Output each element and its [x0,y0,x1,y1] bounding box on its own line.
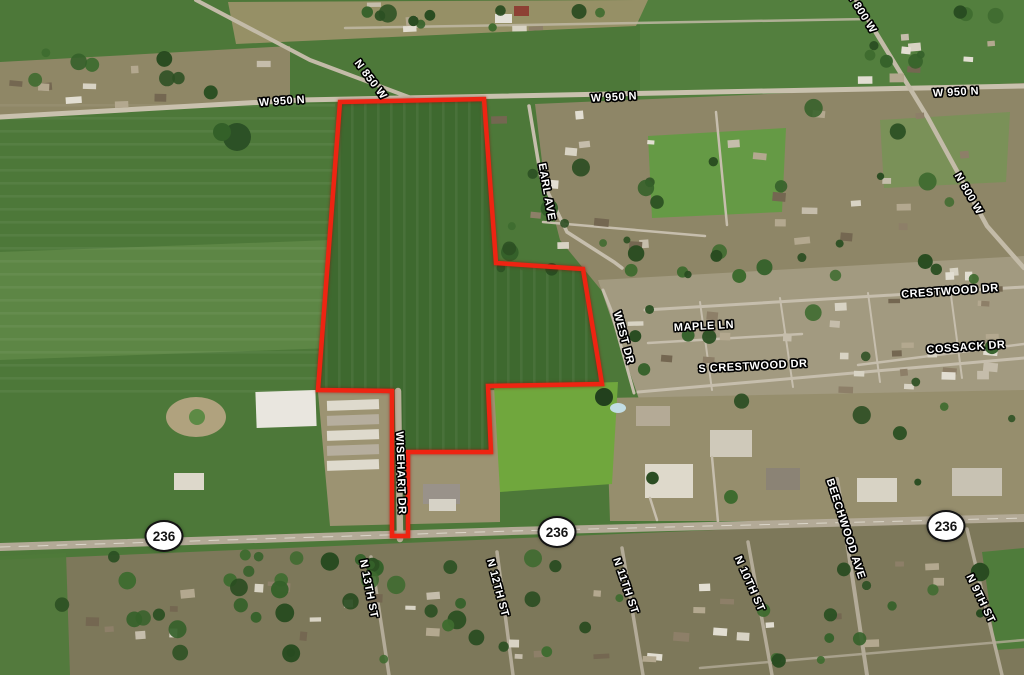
highway-shield-236-center: 236 [538,516,577,548]
map-canvas [0,0,1024,675]
highway-shield-236-left: 236 [145,520,184,552]
highway-shield-236-right: 236 [927,510,966,542]
satellite-imagery [0,0,1024,675]
road-label-wisehart-dr: WISEHART DR [393,431,407,514]
satellite-map[interactable]: W 950 N W 950 N W 950 N N 850 W N 800 W … [0,0,1024,675]
